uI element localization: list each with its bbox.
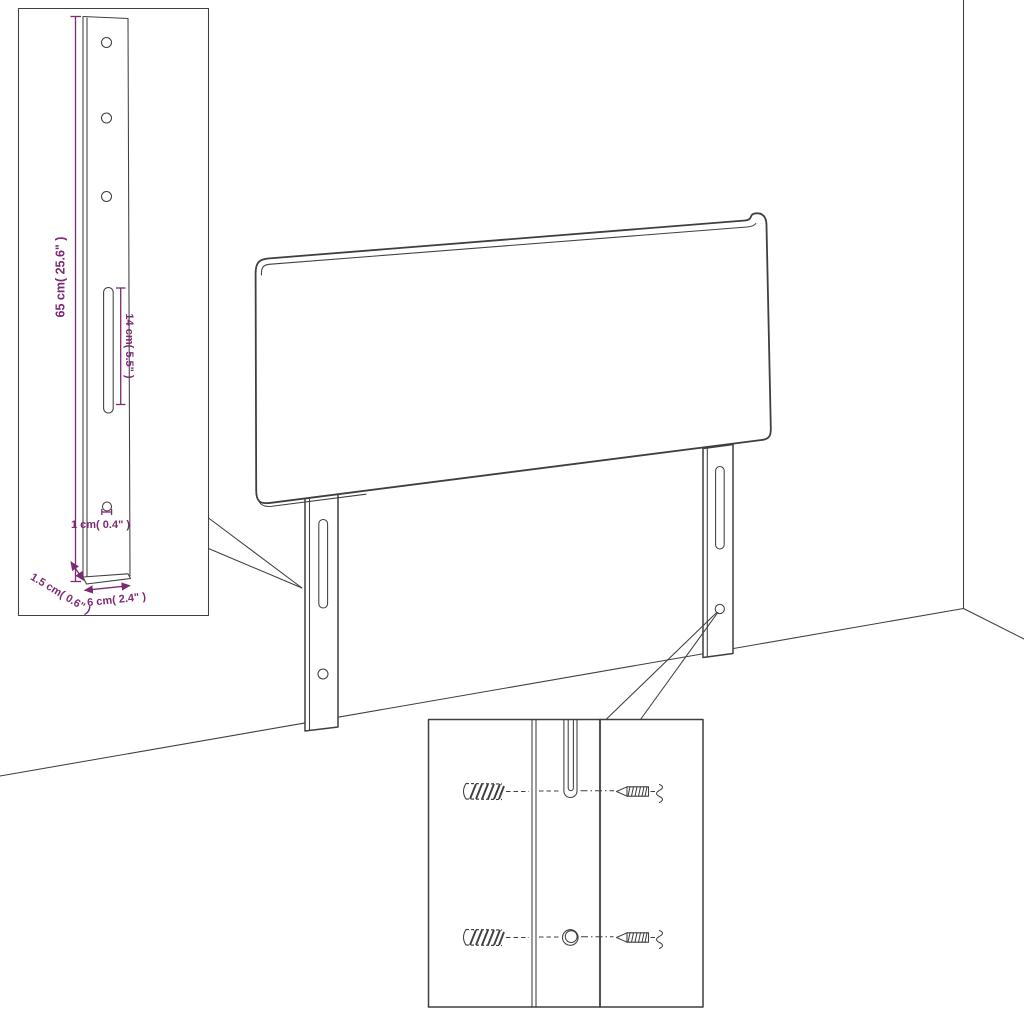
- floor-line-right: [964, 609, 1024, 640]
- headboard-outline: [256, 213, 771, 503]
- inset-leader-upper: [209, 518, 303, 588]
- bracket-slot: [104, 288, 114, 414]
- hardware-frame: [429, 720, 704, 1008]
- bracket-hole-1: [102, 38, 112, 48]
- headboard-assembly-diagram: 65 cm( 25.6" ) 14 cm( 5.5" ) 1 cm( 0.4" …: [0, 0, 1024, 1024]
- assembly-diagram-page: 65 cm( 25.6" ) 14 cm( 5.5" ) 1 cm( 0.4" …: [0, 0, 1024, 1024]
- bracket-hole-bottom: [103, 502, 112, 511]
- bracket-hole-2: [102, 113, 112, 123]
- right-leg-slot: [716, 467, 725, 550]
- inset-leader-lower: [209, 549, 303, 589]
- bracket-hole-3: [102, 192, 112, 202]
- headboard-right-leg: [703, 445, 733, 658]
- right-leg-hole: [715, 604, 724, 613]
- hardware-leader-lines: [606, 613, 718, 720]
- dim-height-label: 65 cm( 25.6" ): [54, 237, 68, 318]
- hardware-detail-panel: [429, 720, 704, 1008]
- headboard-left-leg: [305, 494, 338, 731]
- inset-leader-lines: [209, 518, 303, 588]
- left-leg-hole: [318, 669, 328, 679]
- dim-hole-label: 1 cm( 0.4" ): [71, 519, 130, 531]
- dim-slot-label: 14 cm( 5.5" ): [123, 313, 135, 378]
- hardware-leader-right: [641, 613, 718, 720]
- hardware-leader-left: [606, 613, 716, 720]
- headboard-panel: [256, 213, 771, 506]
- left-leg-slot: [319, 520, 328, 609]
